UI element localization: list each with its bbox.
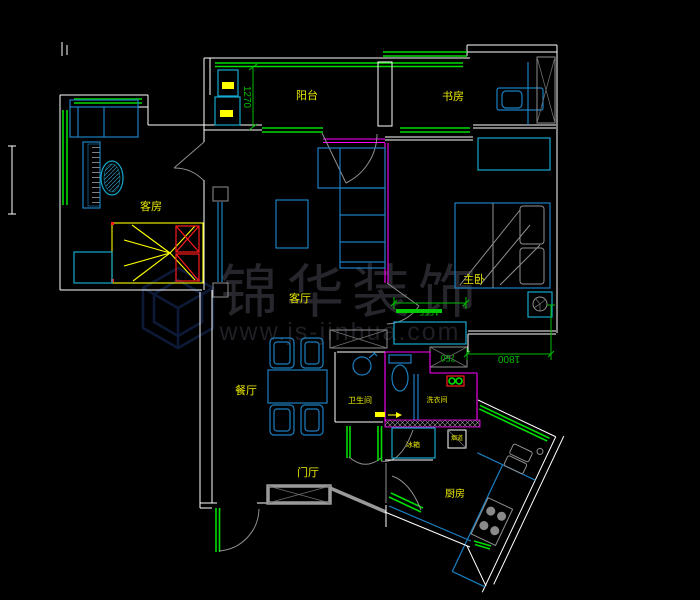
room-label-laundry: 洗衣间 — [427, 395, 448, 404]
room-label-master: 主卧 — [463, 273, 485, 286]
floor-plan-screenshot: 锦华装饰 www.js-jinhua.com — [0, 0, 700, 600]
hatched-wall-strip — [385, 420, 480, 427]
svg-text:冰箱: 冰箱 — [406, 440, 420, 449]
svg-text:1270: 1270 — [241, 86, 252, 109]
rug — [101, 161, 123, 195]
room-label-balcony: 阳台 — [296, 88, 318, 102]
svg-text:烟道: 烟道 — [451, 434, 463, 442]
room-label-bathroom: 卫生间 — [348, 395, 372, 405]
room-label-kitchen: 厨房 — [445, 487, 465, 500]
svg-text:750: 750 — [440, 353, 455, 363]
room-label-dining: 餐厅 — [235, 383, 257, 397]
floor-plan-canvas: 锦华装饰 www.js-jinhua.com — [0, 0, 700, 600]
room-label-living: 客厅 — [289, 291, 311, 305]
svg-text:1555: 1555 — [419, 307, 439, 317]
room-label-entry: 门厅 — [297, 465, 319, 479]
room-label-study: 书房 — [442, 90, 464, 103]
watermark-brand: 锦华装饰 — [220, 260, 484, 325]
svg-text:1800: 1800 — [497, 353, 520, 364]
room-label-guest: 客房 — [140, 199, 162, 213]
